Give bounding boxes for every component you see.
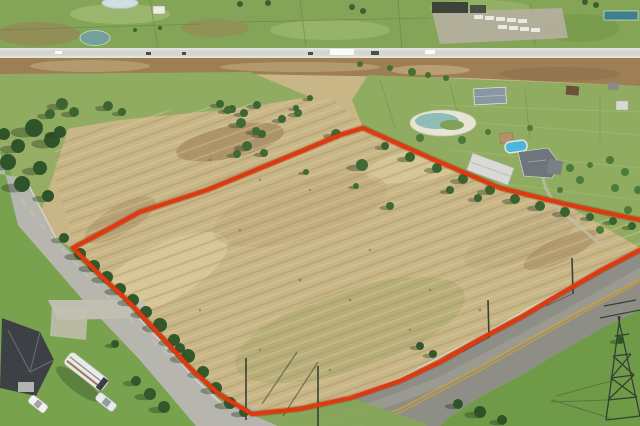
truck-trailer — [496, 17, 505, 21]
teal-building — [604, 11, 638, 20]
vehicle-dark — [182, 52, 186, 55]
tree — [260, 149, 268, 157]
truck-trailer — [509, 26, 518, 30]
tree — [236, 118, 246, 128]
truck-trailer — [498, 25, 507, 29]
aerial-photo-canvas — [0, 0, 640, 426]
tree — [586, 213, 594, 221]
tree — [349, 4, 355, 10]
tree — [616, 336, 624, 344]
vehicle-light — [425, 50, 435, 54]
tree — [474, 406, 486, 418]
tree — [294, 109, 302, 117]
scrub — [429, 289, 431, 291]
aerial-photo — [0, 0, 640, 426]
dirt-mottle — [30, 60, 150, 72]
tree — [307, 95, 313, 101]
bush — [566, 164, 574, 172]
scrub — [239, 229, 242, 232]
tree — [111, 340, 119, 348]
tree — [158, 401, 170, 413]
bush — [485, 129, 491, 135]
scrub — [369, 249, 371, 251]
bush — [606, 156, 614, 164]
tree — [59, 233, 69, 243]
tree — [474, 194, 482, 202]
truck-trailer — [518, 19, 527, 23]
tree — [535, 201, 545, 211]
dirt-patch — [181, 19, 249, 37]
tree — [42, 190, 54, 202]
tree — [593, 2, 599, 8]
tree — [224, 106, 232, 114]
tree — [252, 127, 260, 135]
tree — [560, 207, 570, 217]
tree — [54, 126, 66, 138]
bush — [576, 176, 584, 184]
pasture-patch — [270, 20, 390, 40]
tree — [240, 109, 248, 117]
shed — [608, 83, 619, 90]
tree — [131, 376, 141, 386]
bush — [416, 134, 424, 142]
bush — [624, 206, 632, 214]
tree — [69, 107, 79, 117]
patio — [18, 382, 34, 392]
bush — [527, 125, 533, 131]
bush — [458, 136, 466, 144]
garage-roof — [547, 159, 563, 175]
gravel-pad — [50, 306, 88, 340]
tree — [443, 75, 449, 81]
scrub — [409, 329, 411, 331]
tree — [408, 68, 416, 76]
tree — [237, 1, 243, 7]
dirt-mottle — [220, 62, 380, 72]
bush — [596, 226, 604, 234]
vehicle-dark — [308, 52, 313, 55]
tree — [416, 342, 424, 350]
vehicle-light — [55, 51, 62, 54]
scrub — [299, 279, 302, 282]
tree — [158, 26, 162, 30]
tree — [453, 399, 463, 409]
scrub — [479, 309, 482, 312]
bush — [557, 187, 563, 193]
tree — [253, 101, 261, 109]
tree — [144, 388, 156, 400]
scrub — [259, 349, 261, 351]
scrub — [309, 189, 311, 191]
scrub — [199, 309, 202, 312]
tree — [609, 217, 617, 225]
scrub — [209, 159, 212, 162]
shed — [616, 101, 628, 110]
tree — [425, 72, 431, 78]
vehicle-dark — [371, 51, 379, 55]
truck-trailer — [474, 15, 483, 19]
tree — [103, 101, 113, 111]
dirt-mottle — [500, 67, 620, 81]
scrub — [259, 179, 261, 181]
farm-building — [153, 6, 165, 14]
tree — [265, 0, 271, 6]
truck-trailer — [507, 18, 516, 22]
tree — [381, 142, 389, 150]
warehouse-building — [470, 5, 486, 13]
pond — [80, 31, 110, 46]
tree — [216, 100, 224, 108]
scrub — [349, 299, 352, 302]
bush — [587, 162, 593, 168]
truck-trailer — [485, 16, 494, 20]
truck-trailer — [520, 27, 529, 31]
tree — [133, 28, 137, 32]
tree — [11, 139, 25, 153]
tree — [33, 161, 47, 175]
shed — [566, 85, 580, 95]
bush — [621, 168, 629, 176]
house-north — [474, 87, 507, 105]
tree — [360, 8, 366, 14]
warehouse-building — [432, 2, 468, 13]
highway — [0, 48, 640, 58]
tree — [242, 141, 252, 151]
tree — [497, 415, 507, 425]
vehicle-light — [330, 49, 354, 55]
tree — [356, 159, 368, 171]
tree — [303, 169, 309, 175]
tree — [353, 183, 359, 189]
tree — [25, 119, 43, 137]
tree — [14, 176, 30, 192]
pond-island — [440, 120, 464, 130]
tree — [446, 186, 454, 194]
vehicle-dark — [146, 52, 151, 55]
tree — [357, 61, 363, 67]
pond — [102, 0, 138, 9]
tree — [56, 98, 68, 110]
tree — [628, 222, 636, 230]
truck-trailer — [531, 28, 540, 32]
tree — [45, 109, 55, 119]
tree — [387, 65, 393, 71]
tree — [386, 202, 394, 210]
scrub — [329, 369, 332, 372]
tree — [429, 350, 437, 358]
bush — [611, 184, 619, 192]
tree — [118, 108, 126, 116]
tree — [0, 154, 16, 170]
tree — [278, 115, 286, 123]
tree — [233, 150, 241, 158]
